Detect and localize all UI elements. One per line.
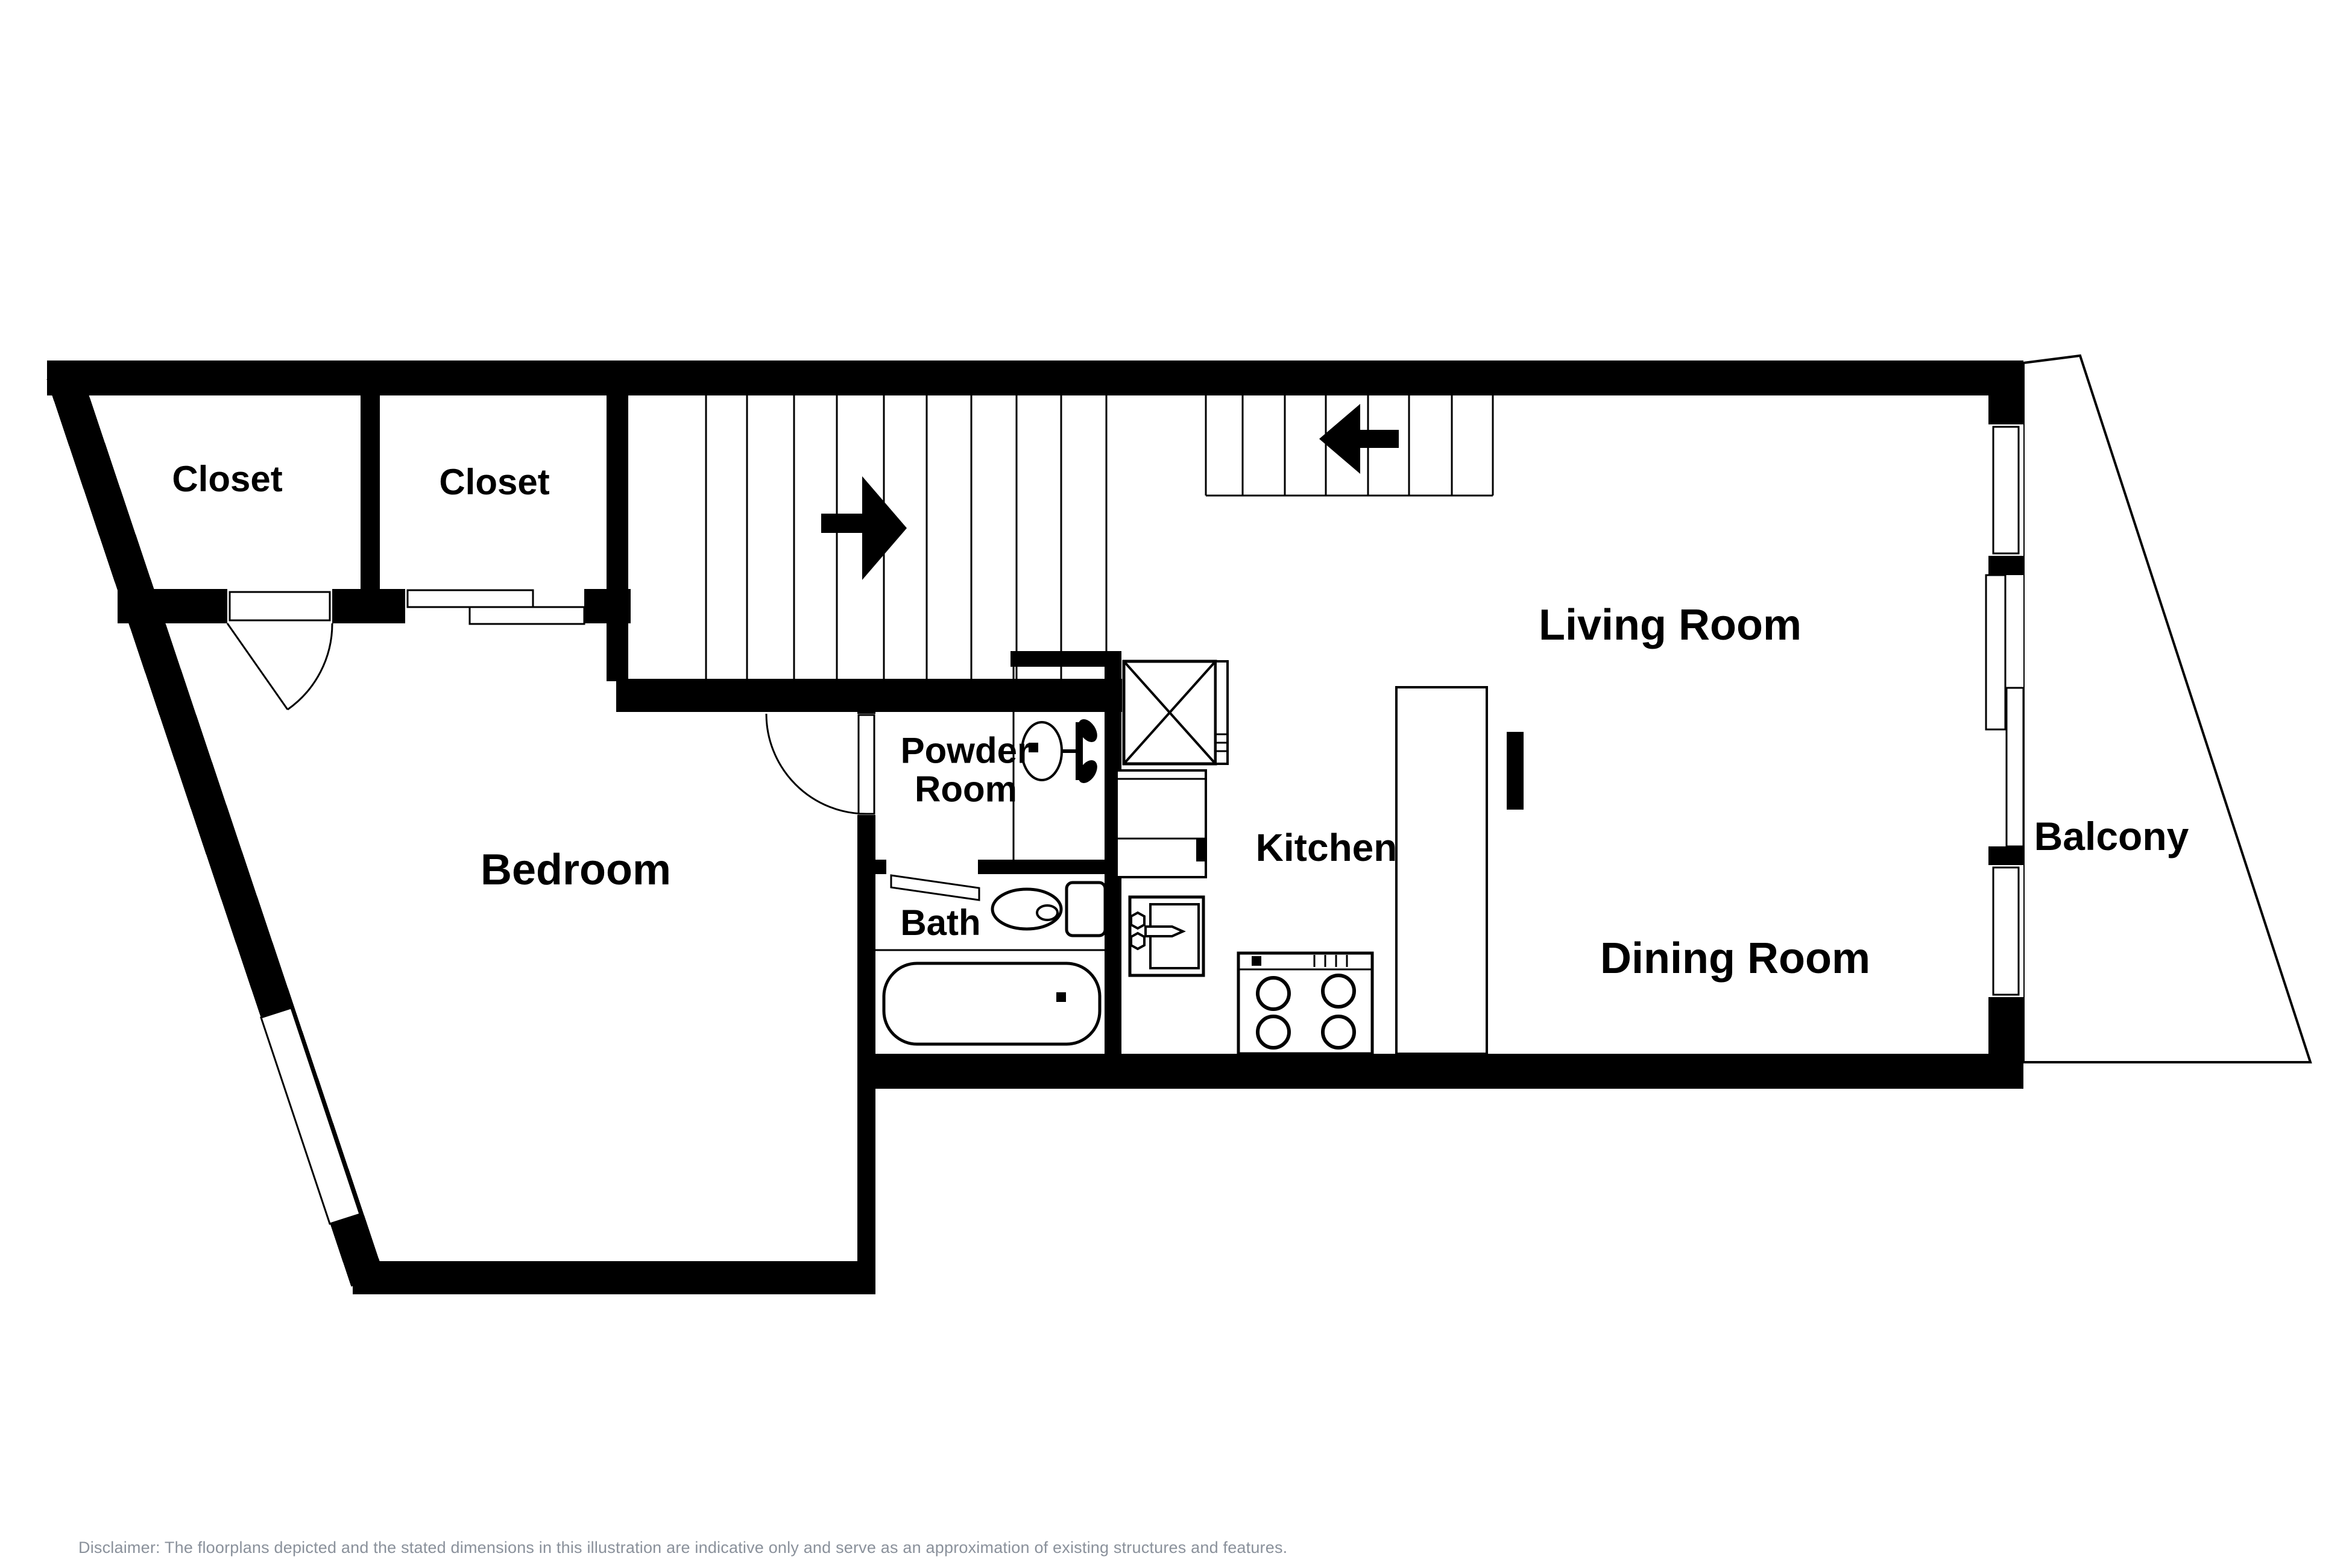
room-label-bedroom: Bedroom xyxy=(481,847,671,893)
closet-separator-wall xyxy=(361,395,380,623)
kitchen-x-cabinet-icon xyxy=(1124,661,1228,764)
stove-icon xyxy=(1238,953,1372,1054)
main-bottom-wall xyxy=(857,1054,2023,1089)
disclaimer-text: Disclaimer: The floorplans depicted and … xyxy=(78,1538,1287,1557)
room-label-kitchen: Kitchen xyxy=(1256,828,1398,869)
walls xyxy=(47,361,2023,1294)
dining-room-window xyxy=(1993,867,2019,995)
stairs-arrow-left-icon xyxy=(1319,404,1399,474)
stairs-left-wall xyxy=(607,395,628,681)
balcony-sliding-pane-upper xyxy=(1986,575,2005,729)
stairs-upper-flight xyxy=(706,395,1106,679)
kitchen-wall-stub xyxy=(1507,732,1524,810)
room-label-dining-room: Dining Room xyxy=(1600,936,1870,981)
powder-room-line2: Room xyxy=(901,770,1032,808)
room-label-powder-room: Powder Room xyxy=(901,731,1032,808)
kitchen-counter xyxy=(1117,770,1206,877)
room-label-balcony: Balcony xyxy=(2034,816,2189,858)
peninsula-counter xyxy=(1396,687,1487,1054)
closet-door-panel xyxy=(230,592,330,620)
room-label-living-room: Living Room xyxy=(1539,602,1802,648)
bath-door-leaf xyxy=(891,875,979,900)
top-wall xyxy=(47,361,2023,395)
room-label-bath: Bath xyxy=(900,904,980,942)
balcony-outline xyxy=(2023,356,2310,1062)
bathtub-icon xyxy=(884,963,1100,1044)
stairs-bottom-wall xyxy=(616,679,1122,712)
powder-room-line1: Powder xyxy=(901,731,1032,770)
room-label-closet-right: Closet xyxy=(439,463,549,502)
closet-door-leaf xyxy=(227,623,288,710)
living-room-window xyxy=(1993,427,2019,553)
kitchen-sink-icon xyxy=(1130,897,1203,975)
sliding-door-pane-left xyxy=(408,590,533,607)
bedroom-door-leaf xyxy=(859,715,874,814)
stairs-arrow-right-icon xyxy=(821,476,907,580)
bedroom-bottom-wall xyxy=(353,1261,875,1294)
bedroom-door-swing-arc xyxy=(766,714,866,814)
toilet-tank-icon xyxy=(1067,883,1105,936)
closet-door-swing-arc xyxy=(288,623,332,710)
room-label-closet-left: Closet xyxy=(172,460,282,499)
floorplan-drawing xyxy=(0,0,2352,1568)
sliding-door-pane-right xyxy=(470,607,584,624)
bedroom-window xyxy=(261,1008,360,1224)
balcony-sliding-pane-lower xyxy=(2007,688,2023,846)
